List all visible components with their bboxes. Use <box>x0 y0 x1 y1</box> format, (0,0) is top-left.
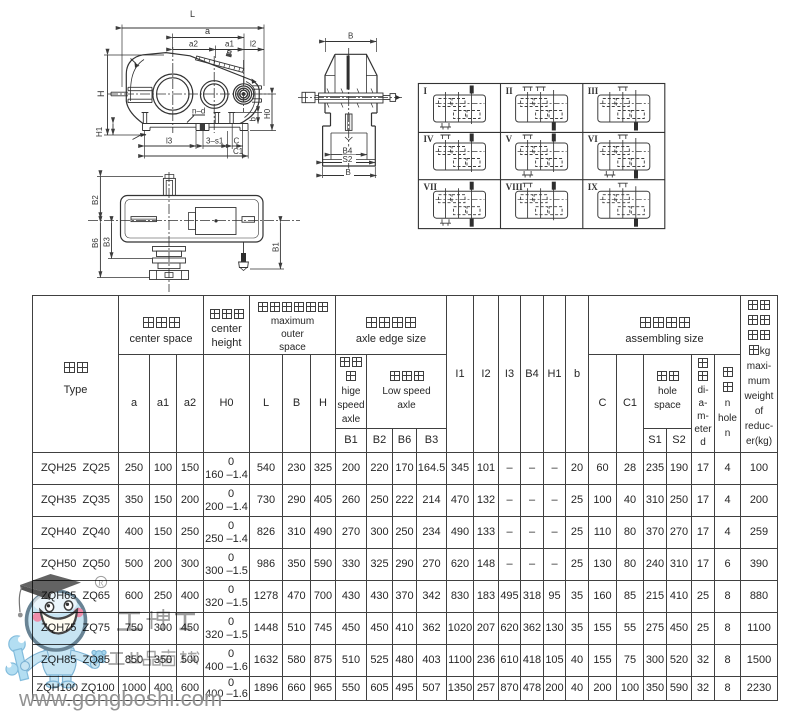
svg-text:III: III <box>588 86 599 96</box>
svg-text:B: B <box>348 32 353 41</box>
svg-text:B: B <box>346 168 351 177</box>
svg-text:VIII: VIII <box>506 182 524 192</box>
svg-text:B3: B3 <box>103 237 112 247</box>
svg-text:H0: H0 <box>263 108 272 119</box>
svg-text:S2: S2 <box>343 155 353 164</box>
svg-text:VI: VI <box>588 134 598 144</box>
svg-text:L: L <box>190 9 195 19</box>
svg-text:b: b <box>249 117 258 122</box>
svg-text:H1: H1 <box>95 126 104 137</box>
svg-text:a2: a2 <box>189 40 198 49</box>
svg-text:a1: a1 <box>225 40 234 49</box>
svg-text:a: a <box>205 26 210 36</box>
svg-text:H: H <box>96 91 106 98</box>
svg-text:V: V <box>506 134 513 144</box>
svg-text:R: R <box>98 578 104 587</box>
svg-text:l2: l2 <box>250 40 257 49</box>
svg-text:VII: VII <box>424 182 438 192</box>
svg-text:C1: C1 <box>233 147 244 156</box>
svg-text:I: I <box>424 86 428 96</box>
svg-text:B2: B2 <box>91 195 100 205</box>
svg-text:l3: l3 <box>166 137 173 146</box>
svg-text:B6: B6 <box>91 238 100 248</box>
svg-text:3–s1: 3–s1 <box>206 137 224 146</box>
svg-text:C: C <box>234 137 240 146</box>
svg-text:IX: IX <box>588 182 599 192</box>
svg-text:n–d: n–d <box>192 107 205 116</box>
svg-text:IV: IV <box>424 134 435 144</box>
svg-text:II: II <box>506 86 514 96</box>
svg-text:B1: B1 <box>272 242 281 252</box>
